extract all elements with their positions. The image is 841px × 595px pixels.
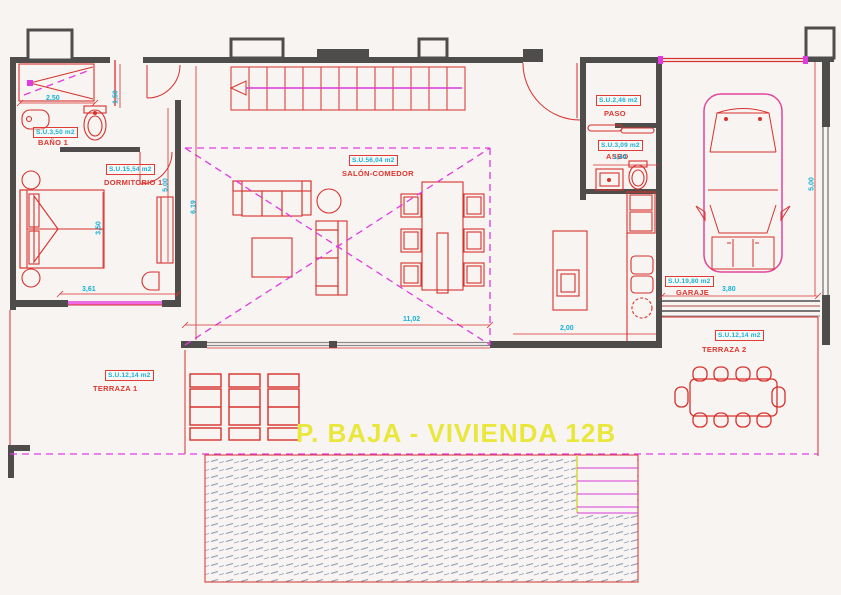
area-label-salon: S.U.56,04 m2 bbox=[349, 155, 398, 166]
dining-table bbox=[422, 182, 463, 290]
area-label-bano1: S.U.3,50 m2 bbox=[33, 127, 78, 138]
nightstand bbox=[22, 269, 40, 287]
lounger bbox=[190, 374, 221, 440]
dim-dorm-width: 3,61 bbox=[82, 286, 96, 293]
pool bbox=[205, 455, 638, 582]
wardrobe bbox=[157, 197, 173, 263]
hob-circle bbox=[632, 298, 652, 318]
stairs bbox=[231, 67, 465, 110]
dim-dorm-height: 3,50 bbox=[96, 221, 103, 235]
nightstand bbox=[22, 171, 40, 189]
bedroom-window bbox=[68, 301, 162, 305]
plan-title: P. BAJA - VIVIENDA 12B bbox=[296, 418, 616, 449]
sliding-door-leaf bbox=[621, 128, 654, 133]
dim-kitchen-width: 2,00 bbox=[560, 325, 574, 332]
coffee-table bbox=[252, 238, 292, 277]
room-label-terraza2: TERRAZA 2 bbox=[702, 345, 747, 354]
dim-salon-left: 6,19 bbox=[191, 200, 198, 214]
garage-door-top bbox=[658, 56, 808, 64]
area-label-aseo: S.U.3,09 m2 bbox=[598, 140, 643, 151]
sink-basin bbox=[631, 256, 653, 274]
doors bbox=[115, 60, 580, 184]
outdoor-dining-set bbox=[675, 367, 785, 427]
dim-salon-width: 11,02 bbox=[403, 316, 420, 323]
plan-linework bbox=[0, 0, 841, 595]
room-label-dormitorio1: DORMITORIO 1 bbox=[104, 178, 162, 187]
bedroom-door-arc bbox=[147, 65, 180, 98]
sofa-horizontal bbox=[233, 181, 311, 216]
sun-loungers bbox=[190, 374, 299, 440]
wall-projections bbox=[28, 28, 834, 60]
toilet-tank bbox=[629, 161, 647, 167]
dim-bano-width: 2,50 bbox=[46, 95, 60, 102]
area-label-terraza2: S.U.12,14 m2 bbox=[715, 330, 764, 341]
room-label-salon: SALÓN-COMEDOR bbox=[342, 169, 414, 178]
dim-garaje-width: 3,80 bbox=[722, 286, 736, 293]
dim-garaje-height: 5,00 bbox=[809, 177, 816, 191]
living-room-furniture bbox=[233, 181, 484, 295]
kitchen bbox=[553, 192, 655, 341]
outdoor-table bbox=[690, 379, 777, 416]
main-door-arc bbox=[523, 63, 580, 120]
dim-aseo-width: 1,44 bbox=[613, 154, 627, 161]
shower-drain-mark bbox=[27, 80, 33, 86]
bedroom-side-table bbox=[142, 272, 159, 290]
dim-dorm-right: 5,00 bbox=[163, 178, 170, 192]
room-label-paso: PASO bbox=[604, 109, 626, 118]
dim-bano-height: 1,50 bbox=[113, 90, 120, 104]
area-label-garaje: S.U.19,80 m2 bbox=[665, 276, 714, 287]
table-runner bbox=[437, 233, 448, 293]
room-label-terraza1: TERRAZA 1 bbox=[93, 384, 138, 393]
ceiling-dashed-lines bbox=[10, 70, 818, 454]
area-label-terraza1: S.U.12,14 m2 bbox=[105, 370, 154, 381]
round-side-table bbox=[317, 189, 341, 213]
area-label-dormitorio1: S.U.15,54 m2 bbox=[106, 164, 155, 175]
lounger bbox=[229, 374, 260, 440]
car bbox=[696, 94, 790, 272]
dining-set bbox=[401, 182, 484, 293]
floor-plan: S.U.3,50 m2 BAÑO 1 S.U.15,54 m2 DORMITOR… bbox=[0, 0, 841, 595]
garage-door-bottom bbox=[662, 301, 820, 316]
room-label-bano1: BAÑO 1 bbox=[38, 138, 68, 147]
dimension-lines bbox=[17, 62, 821, 340]
pool-steps-area bbox=[577, 456, 637, 513]
lounger bbox=[268, 374, 299, 440]
room-label-garaje: GARAJE bbox=[676, 288, 709, 297]
sink-basin bbox=[631, 276, 653, 293]
area-label-paso: S.U.2,46 m2 bbox=[596, 95, 641, 106]
